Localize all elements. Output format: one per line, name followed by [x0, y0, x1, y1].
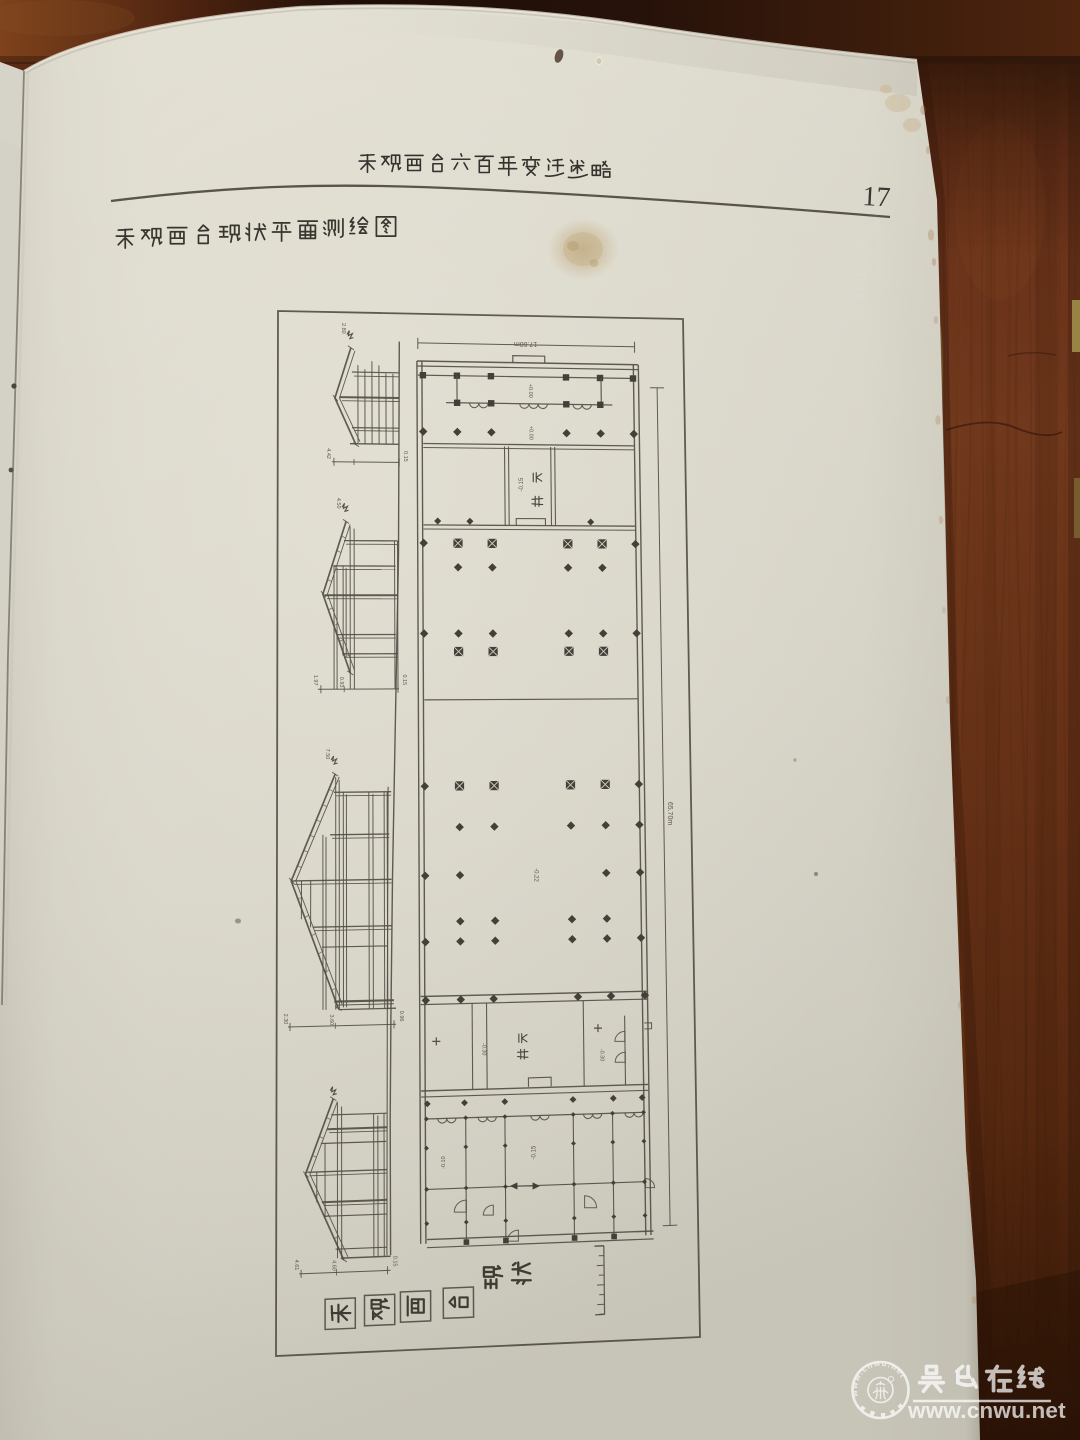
svg-text:-0.30: -0.30 — [481, 1043, 487, 1056]
svg-text:4.42: 4.42 — [325, 448, 331, 459]
svg-text:www.cnwu.net: www.cnwu.net — [907, 1398, 1066, 1423]
svg-text:-0.10: -0.10 — [441, 1156, 447, 1169]
svg-text:17.60m: 17.60m — [514, 340, 538, 347]
svg-text:-0.30: -0.30 — [598, 1049, 604, 1062]
svg-text:+0.00: +0.00 — [527, 384, 533, 398]
svg-text:+0.00: +0.00 — [528, 426, 534, 440]
svg-text:4.61: 4.61 — [293, 1260, 299, 1271]
svg-text:2.80: 2.80 — [340, 323, 346, 334]
svg-text:65.70m: 65.70m — [666, 802, 673, 826]
svg-text:7.50: 7.50 — [324, 749, 330, 760]
svg-text:4.50: 4.50 — [335, 498, 341, 509]
svg-text:0.15: 0.15 — [401, 674, 407, 685]
svg-text:www.cnwu.net: www.cnwu.net — [871, 205, 885, 277]
svg-text:1.97: 1.97 — [312, 675, 318, 686]
svg-text:3.60: 3.60 — [328, 1015, 334, 1026]
svg-text:-0.22: -0.22 — [533, 868, 539, 882]
svg-text:2.30: 2.30 — [282, 1014, 288, 1025]
svg-text:-0.15: -0.15 — [531, 1145, 537, 1159]
svg-text:0.15: 0.15 — [402, 451, 408, 462]
svg-text:0.93: 0.93 — [338, 677, 344, 688]
svg-text:0.15: 0.15 — [392, 1256, 398, 1267]
svg-text:4.60: 4.60 — [330, 1260, 336, 1271]
svg-text:0.96: 0.96 — [398, 1011, 404, 1022]
svg-text:-0.15: -0.15 — [519, 477, 525, 491]
